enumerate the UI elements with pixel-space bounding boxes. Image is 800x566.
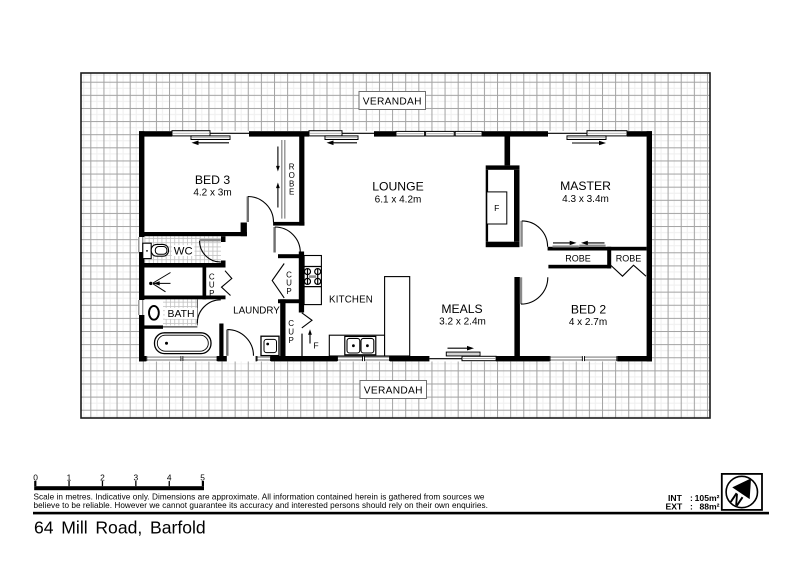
svg-text:EXT: EXT — [666, 502, 683, 512]
svg-text:3.2 x 2.4m: 3.2 x 2.4m — [439, 317, 486, 328]
svg-text:WC: WC — [174, 246, 193, 258]
svg-text:KITCHEN: KITCHEN — [329, 295, 373, 306]
svg-text:MEALS: MEALS — [441, 302, 482, 316]
svg-text::: : — [690, 502, 693, 512]
svg-text:believe to be reliable. Howev: believe to be reliable. However we canno… — [34, 501, 488, 510]
svg-text:VERANDAH: VERANDAH — [363, 96, 422, 107]
svg-text:E: E — [289, 188, 294, 197]
svg-text:4.3 x 3.4m: 4.3 x 3.4m — [562, 194, 609, 205]
svg-text:BATH: BATH — [168, 309, 195, 320]
svg-text:64 Mill Road, Barfold: 64 Mill Road, Barfold — [34, 518, 206, 538]
svg-text:P: P — [289, 336, 294, 345]
svg-text:LAUNDRY: LAUNDRY — [233, 305, 280, 316]
svg-text:88m²: 88m² — [699, 502, 719, 512]
svg-text:VERANDAH: VERANDAH — [364, 385, 423, 396]
svg-text:BED 3: BED 3 — [195, 173, 230, 187]
svg-text:6.1 x 4.2m: 6.1 x 4.2m — [375, 195, 422, 206]
svg-text:P: P — [286, 287, 291, 296]
svg-text:F: F — [313, 341, 318, 351]
svg-text:ROBE: ROBE — [565, 253, 591, 263]
svg-text:LOUNGE: LOUNGE — [372, 180, 423, 194]
svg-text:F: F — [494, 203, 499, 213]
svg-text:BED 2: BED 2 — [571, 303, 606, 317]
svg-text:P: P — [209, 289, 214, 298]
svg-text:4.2 x 3m: 4.2 x 3m — [193, 188, 231, 199]
svg-text:ROBE: ROBE — [616, 253, 642, 263]
svg-text:4 x 2.7m: 4 x 2.7m — [569, 317, 607, 328]
svg-text:MASTER: MASTER — [560, 179, 611, 193]
